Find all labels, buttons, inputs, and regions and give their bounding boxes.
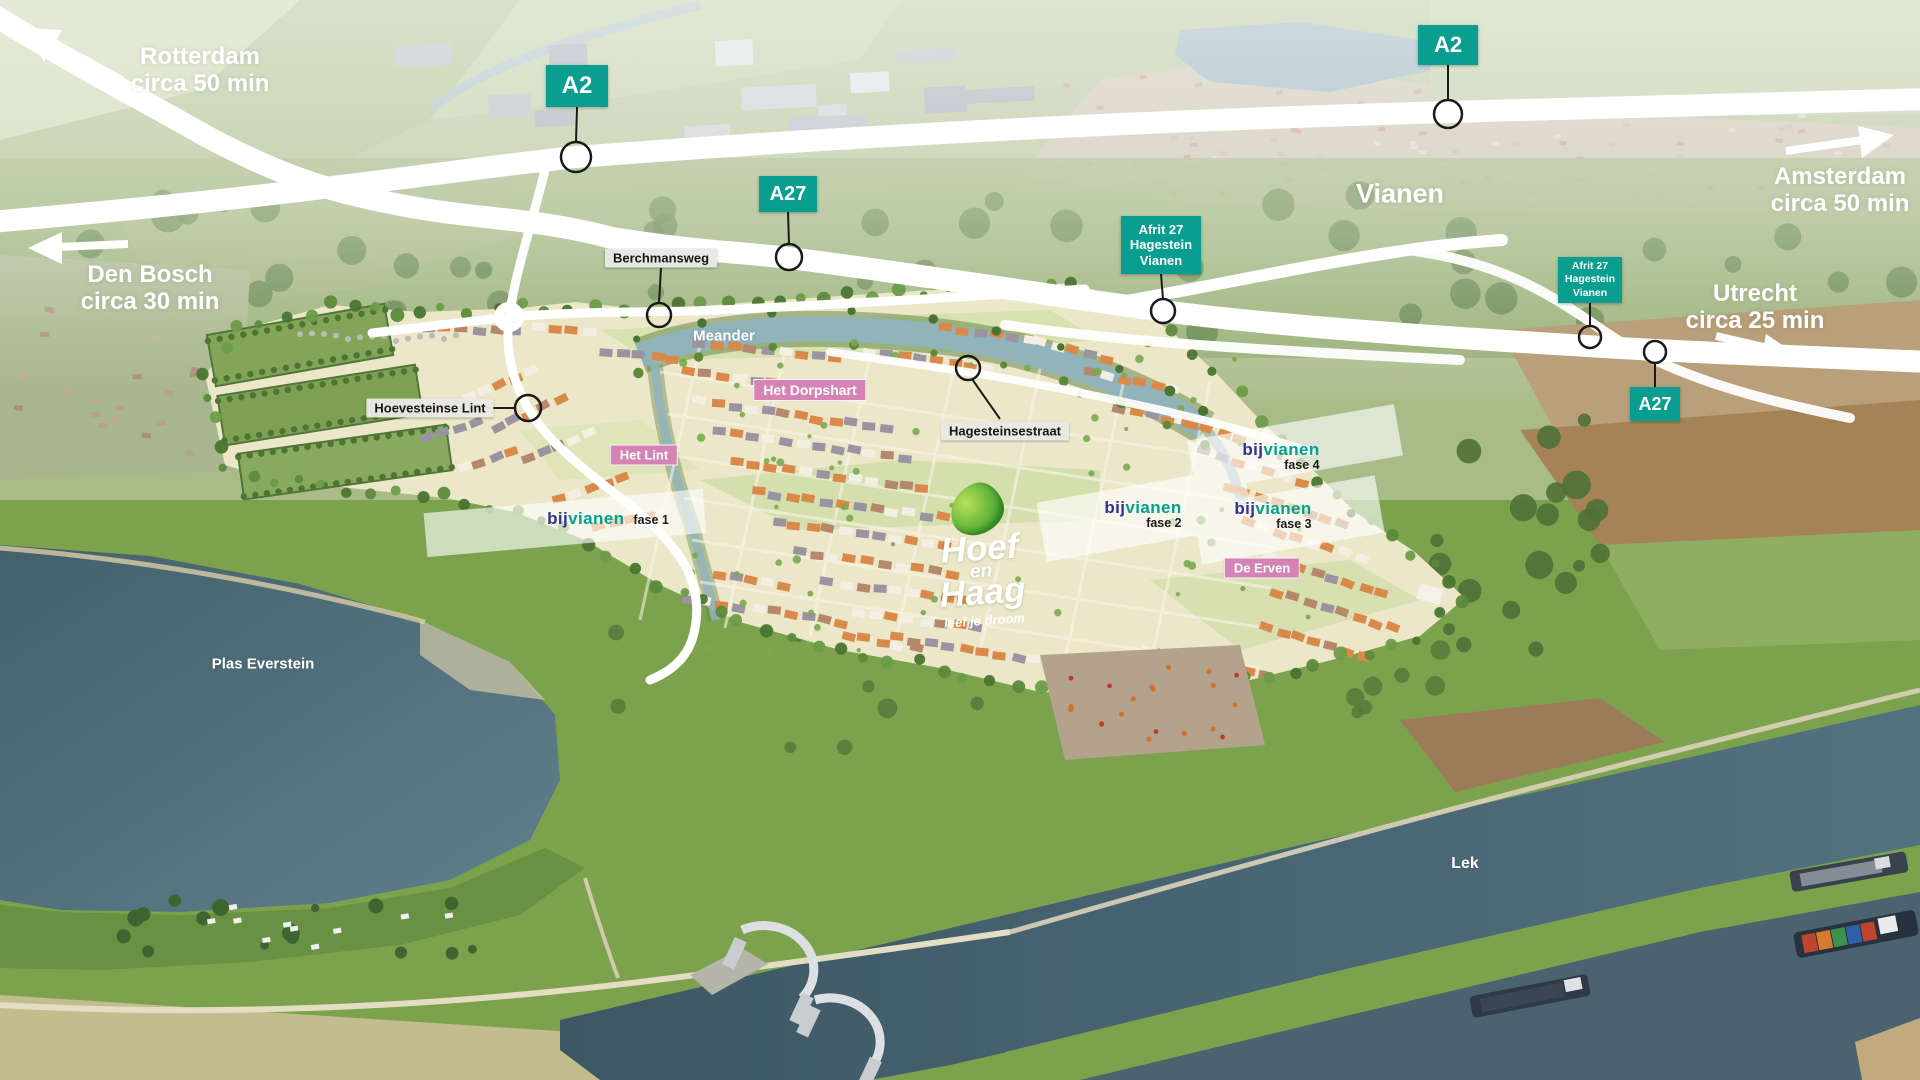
phase-label-fase-3: bijvianen fase 3 <box>1234 499 1311 531</box>
phase-number: fase 1 <box>633 513 668 527</box>
road-badge-a2-north: A2 <box>1418 25 1478 65</box>
brand-vianen: vianen <box>1255 499 1311 518</box>
logo-line: Haag <box>920 575 1046 612</box>
destination-rotterdam: Rotterdam circa 50 min <box>131 43 270 97</box>
brand-bij: bij <box>1104 498 1125 517</box>
destination-time: circa 25 min <box>1686 307 1825 334</box>
brand-vianen: vianen <box>1263 440 1319 459</box>
brand-vianen: vianen <box>1125 498 1181 517</box>
destination-utrecht: Utrecht circa 25 min <box>1686 280 1825 334</box>
brand-bij: bij <box>1242 440 1263 459</box>
destination-time: circa 30 min <box>81 288 220 315</box>
destination-amsterdam: Amsterdam circa 50 min <box>1771 163 1910 217</box>
phase-number: fase 3 <box>1276 517 1311 531</box>
street-label-hagesteinsestraat: Hagesteinsestraat <box>941 422 1069 441</box>
destination-time: circa 50 min <box>131 70 270 97</box>
water-label-lek: Lek <box>1451 855 1479 873</box>
destination-city: Rotterdam <box>131 43 270 70</box>
exit-line: Afrit 27 <box>1572 260 1608 273</box>
bij-vianen-brand: bijvianen <box>1242 440 1319 460</box>
exit-badge-west: Afrit 27 Hagestein Vianen <box>1121 216 1201 274</box>
water-label-meander: Meander <box>693 328 755 345</box>
destination-time: circa 50 min <box>1771 190 1910 217</box>
exit-badge-east: Afrit 27 Hagestein Vianen <box>1558 257 1622 303</box>
bij-vianen-brand: bijvianen <box>1234 499 1311 519</box>
aerial-map: Rotterdam circa 50 min Den Bosch circa 3… <box>0 0 1920 1080</box>
area-label-het-lint: Het Lint <box>610 445 678 466</box>
phase-label-fase-2: bijvianen fase 2 <box>1104 498 1181 530</box>
brand-vianen: vianen <box>568 509 624 528</box>
bij-vianen-brand: bijvianen <box>1104 498 1181 518</box>
phase-number: fase 4 <box>1284 458 1319 472</box>
destination-city: Amsterdam <box>1771 163 1910 190</box>
area-label-de-erven: De Erven <box>1224 558 1300 579</box>
exit-line: Hagestein <box>1565 273 1615 286</box>
destination-city: Den Bosch <box>81 261 220 288</box>
destination-city: Utrecht <box>1686 280 1825 307</box>
bij-vianen-brand: bijvianen <box>547 509 624 529</box>
destination-den-bosch: Den Bosch circa 30 min <box>81 261 220 315</box>
water-label-plas-everstein: Plas Everstein <box>212 656 315 673</box>
phase-label-fase-1: bijvianen fase 1 <box>547 509 669 529</box>
exit-line: Afrit 27 <box>1139 222 1184 238</box>
road-badge-a27-west: A27 <box>759 176 817 212</box>
exit-line: Vianen <box>1573 287 1607 300</box>
phase-number: fase 2 <box>1146 516 1181 530</box>
area-label-het-dorpshart: Het Dorpshart <box>753 379 866 401</box>
street-label-hoevesteinse-lint: Hoevesteinse Lint <box>366 399 493 418</box>
street-label-berchmansweg: Berchmansweg <box>605 249 717 268</box>
logo-wordmark: Hoef en Haag <box>917 531 1046 612</box>
road-badge-a27-east: A27 <box>1630 387 1680 421</box>
exit-line: Hagestein <box>1130 237 1192 253</box>
exit-line: Vianen <box>1140 253 1182 269</box>
brand-bij: bij <box>547 509 568 528</box>
phase-label-fase-4: bijvianen fase 4 <box>1242 440 1319 472</box>
brand-bij: bij <box>1234 499 1255 518</box>
road-badge-a2-west: A2 <box>546 65 608 107</box>
tractor-lot <box>1040 645 1265 760</box>
city-label-vianen: Vianen <box>1356 179 1444 210</box>
hoef-en-haag-logo: Hoef en Haag leef je droom <box>913 480 1047 632</box>
